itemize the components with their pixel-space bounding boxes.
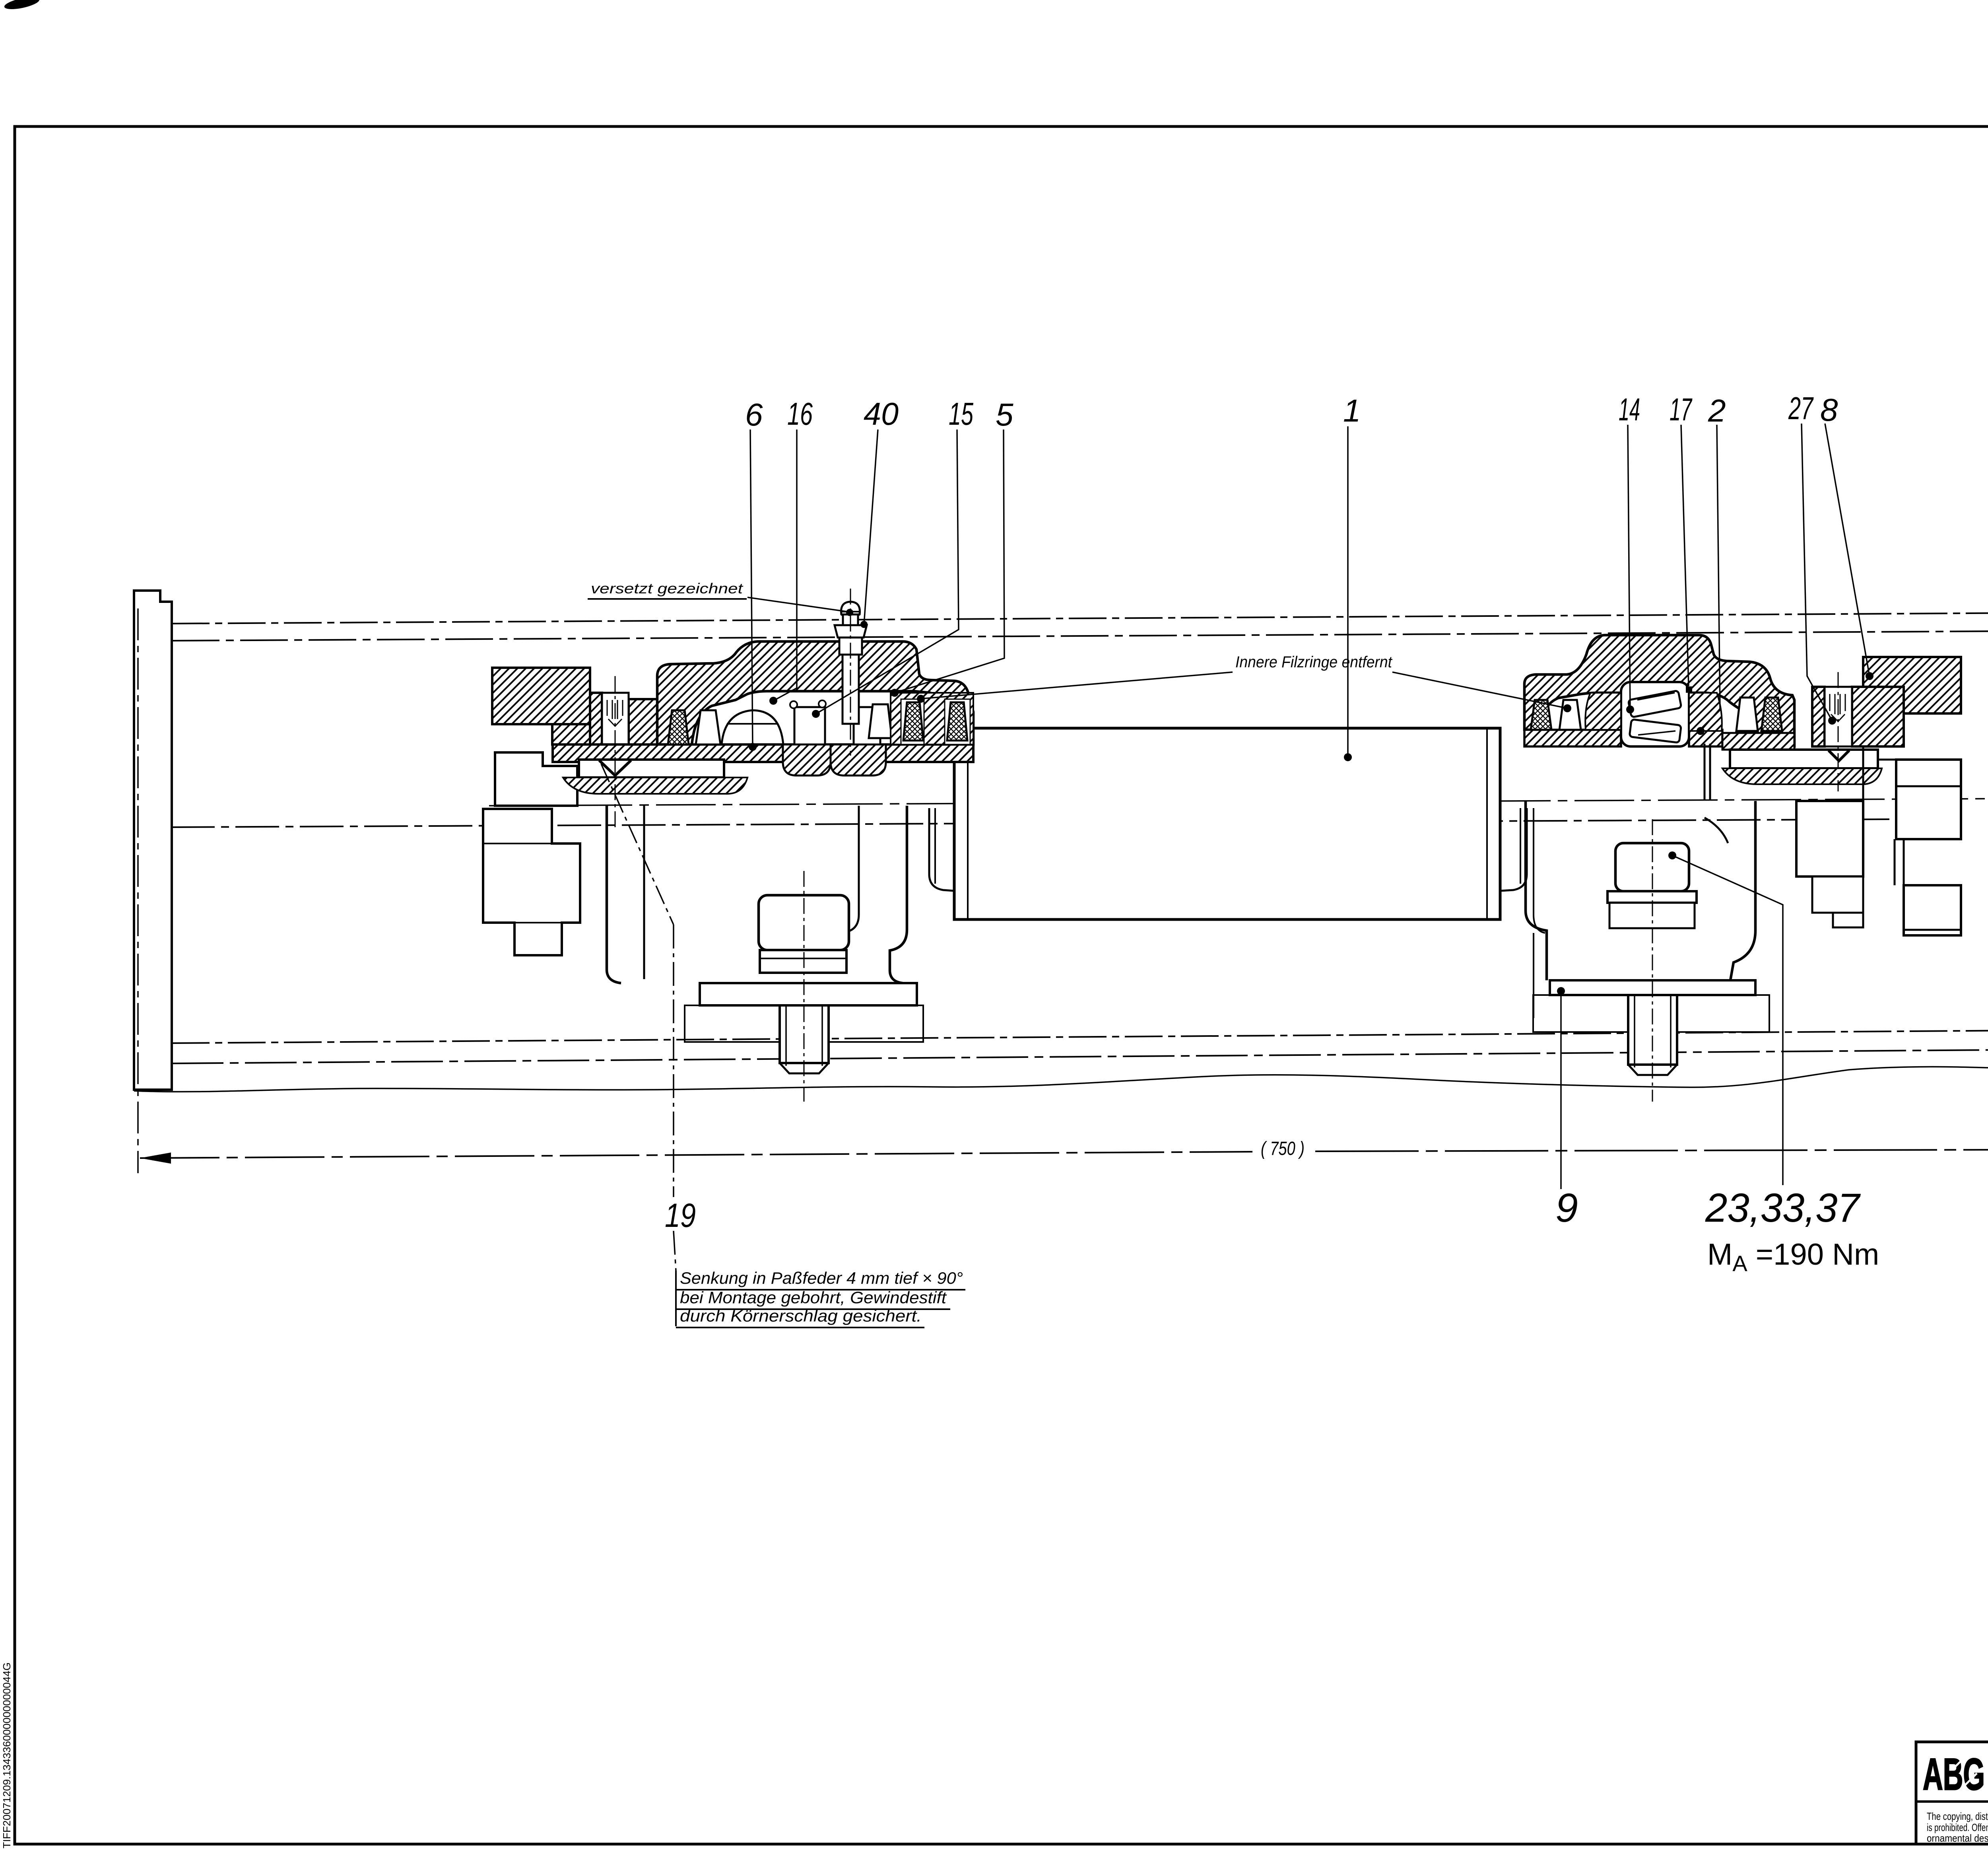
svg-text:bei Montage gebohrt, Gewindest: bei Montage gebohrt, Gewindestift <box>680 1288 947 1307</box>
svg-text:durch Körnerschlag gesichert.: durch Körnerschlag gesichert. <box>680 1306 922 1325</box>
svg-text:1: 1 <box>1343 393 1361 428</box>
svg-text:15: 15 <box>949 396 973 431</box>
svg-text:ornamental design registration: ornamental design registration. <box>1927 1832 1988 1844</box>
svg-text:2: 2 <box>1708 393 1726 428</box>
svg-text:is prohibited. Offenders will: is prohibited. Offenders will be held li… <box>1927 1821 1988 1833</box>
svg-text:27: 27 <box>1788 391 1813 426</box>
svg-text:23,33,37: 23,33,37 <box>1705 1185 1861 1230</box>
svg-text:40: 40 <box>864 396 899 431</box>
svg-text:17: 17 <box>1670 392 1693 427</box>
svg-text:Innere Filzringe entfernt: Innere Filzringe entfernt <box>1235 653 1393 671</box>
svg-text:( 750 ): ( 750 ) <box>1261 1138 1305 1159</box>
svg-text:16: 16 <box>787 396 813 431</box>
svg-text:19: 19 <box>665 1197 696 1234</box>
svg-text:TIFF20071209.13433600000000004: TIFF20071209.134336000000000044G <box>1 1662 13 1848</box>
svg-text:8: 8 <box>1820 392 1838 428</box>
svg-text:14: 14 <box>1619 392 1640 427</box>
svg-text:5: 5 <box>996 397 1013 432</box>
svg-text:Senkung in Paßfeder 4 mm tief: Senkung in Paßfeder 4 mm tief × 90° <box>680 1269 963 1287</box>
svg-text:9: 9 <box>1555 1185 1578 1230</box>
svg-text:6: 6 <box>745 397 763 432</box>
svg-text:The copying, distribution and: The copying, distribution and utilizatio… <box>1927 1810 1988 1822</box>
svg-text:versetzt gezeichnet: versetzt gezeichnet <box>591 580 744 597</box>
